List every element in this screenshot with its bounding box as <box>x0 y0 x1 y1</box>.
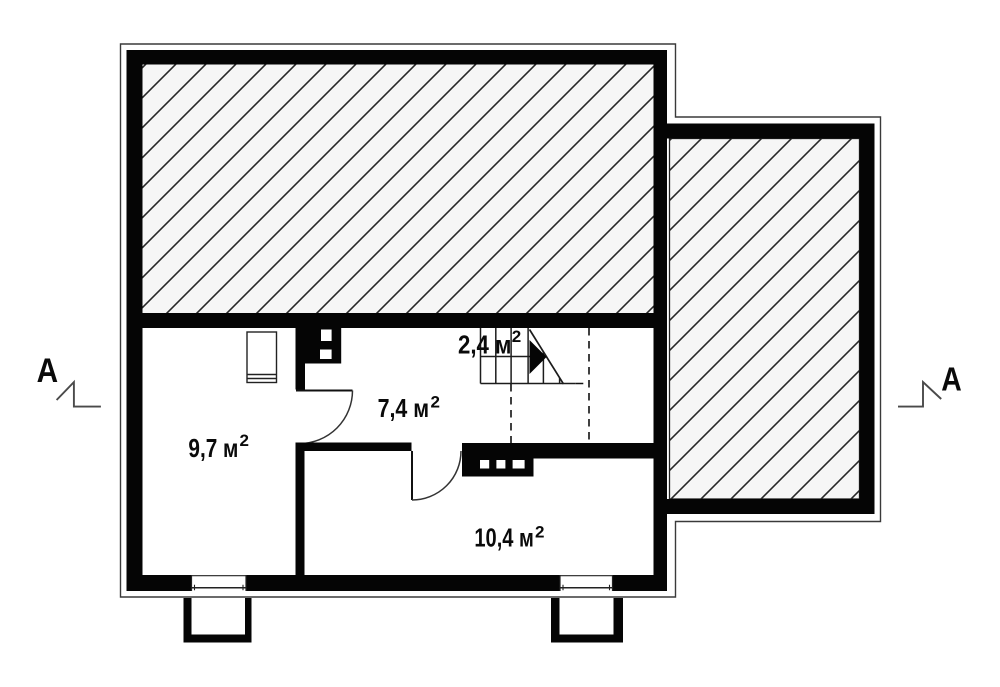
svg-text:2: 2 <box>535 523 544 542</box>
svg-text:10,4 м: 10,4 м <box>474 523 534 553</box>
svg-text:7,4 м: 7,4 м <box>378 393 430 423</box>
svg-text:2: 2 <box>240 431 249 450</box>
svg-text:A: A <box>941 361 962 398</box>
svg-text:A: A <box>37 352 59 390</box>
svg-text:9,7 м: 9,7 м <box>188 433 238 463</box>
svg-text:2,4 м: 2,4 м <box>458 330 512 360</box>
svg-text:2: 2 <box>512 327 521 346</box>
svg-text:2: 2 <box>431 392 440 411</box>
